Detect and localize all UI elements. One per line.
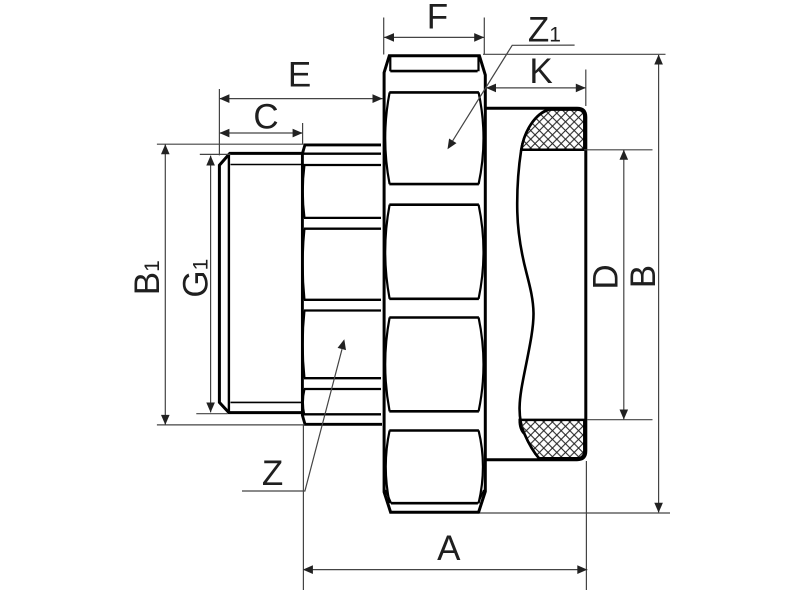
svg-text:D: D: [587, 264, 626, 289]
svg-text:F: F: [427, 0, 448, 36]
svg-text:E: E: [288, 56, 311, 95]
svg-text:A: A: [437, 529, 461, 568]
svg-text:C: C: [253, 98, 278, 137]
svg-text:B: B: [624, 265, 663, 288]
svg-text:K: K: [529, 52, 552, 91]
svg-text:Z: Z: [262, 454, 283, 493]
